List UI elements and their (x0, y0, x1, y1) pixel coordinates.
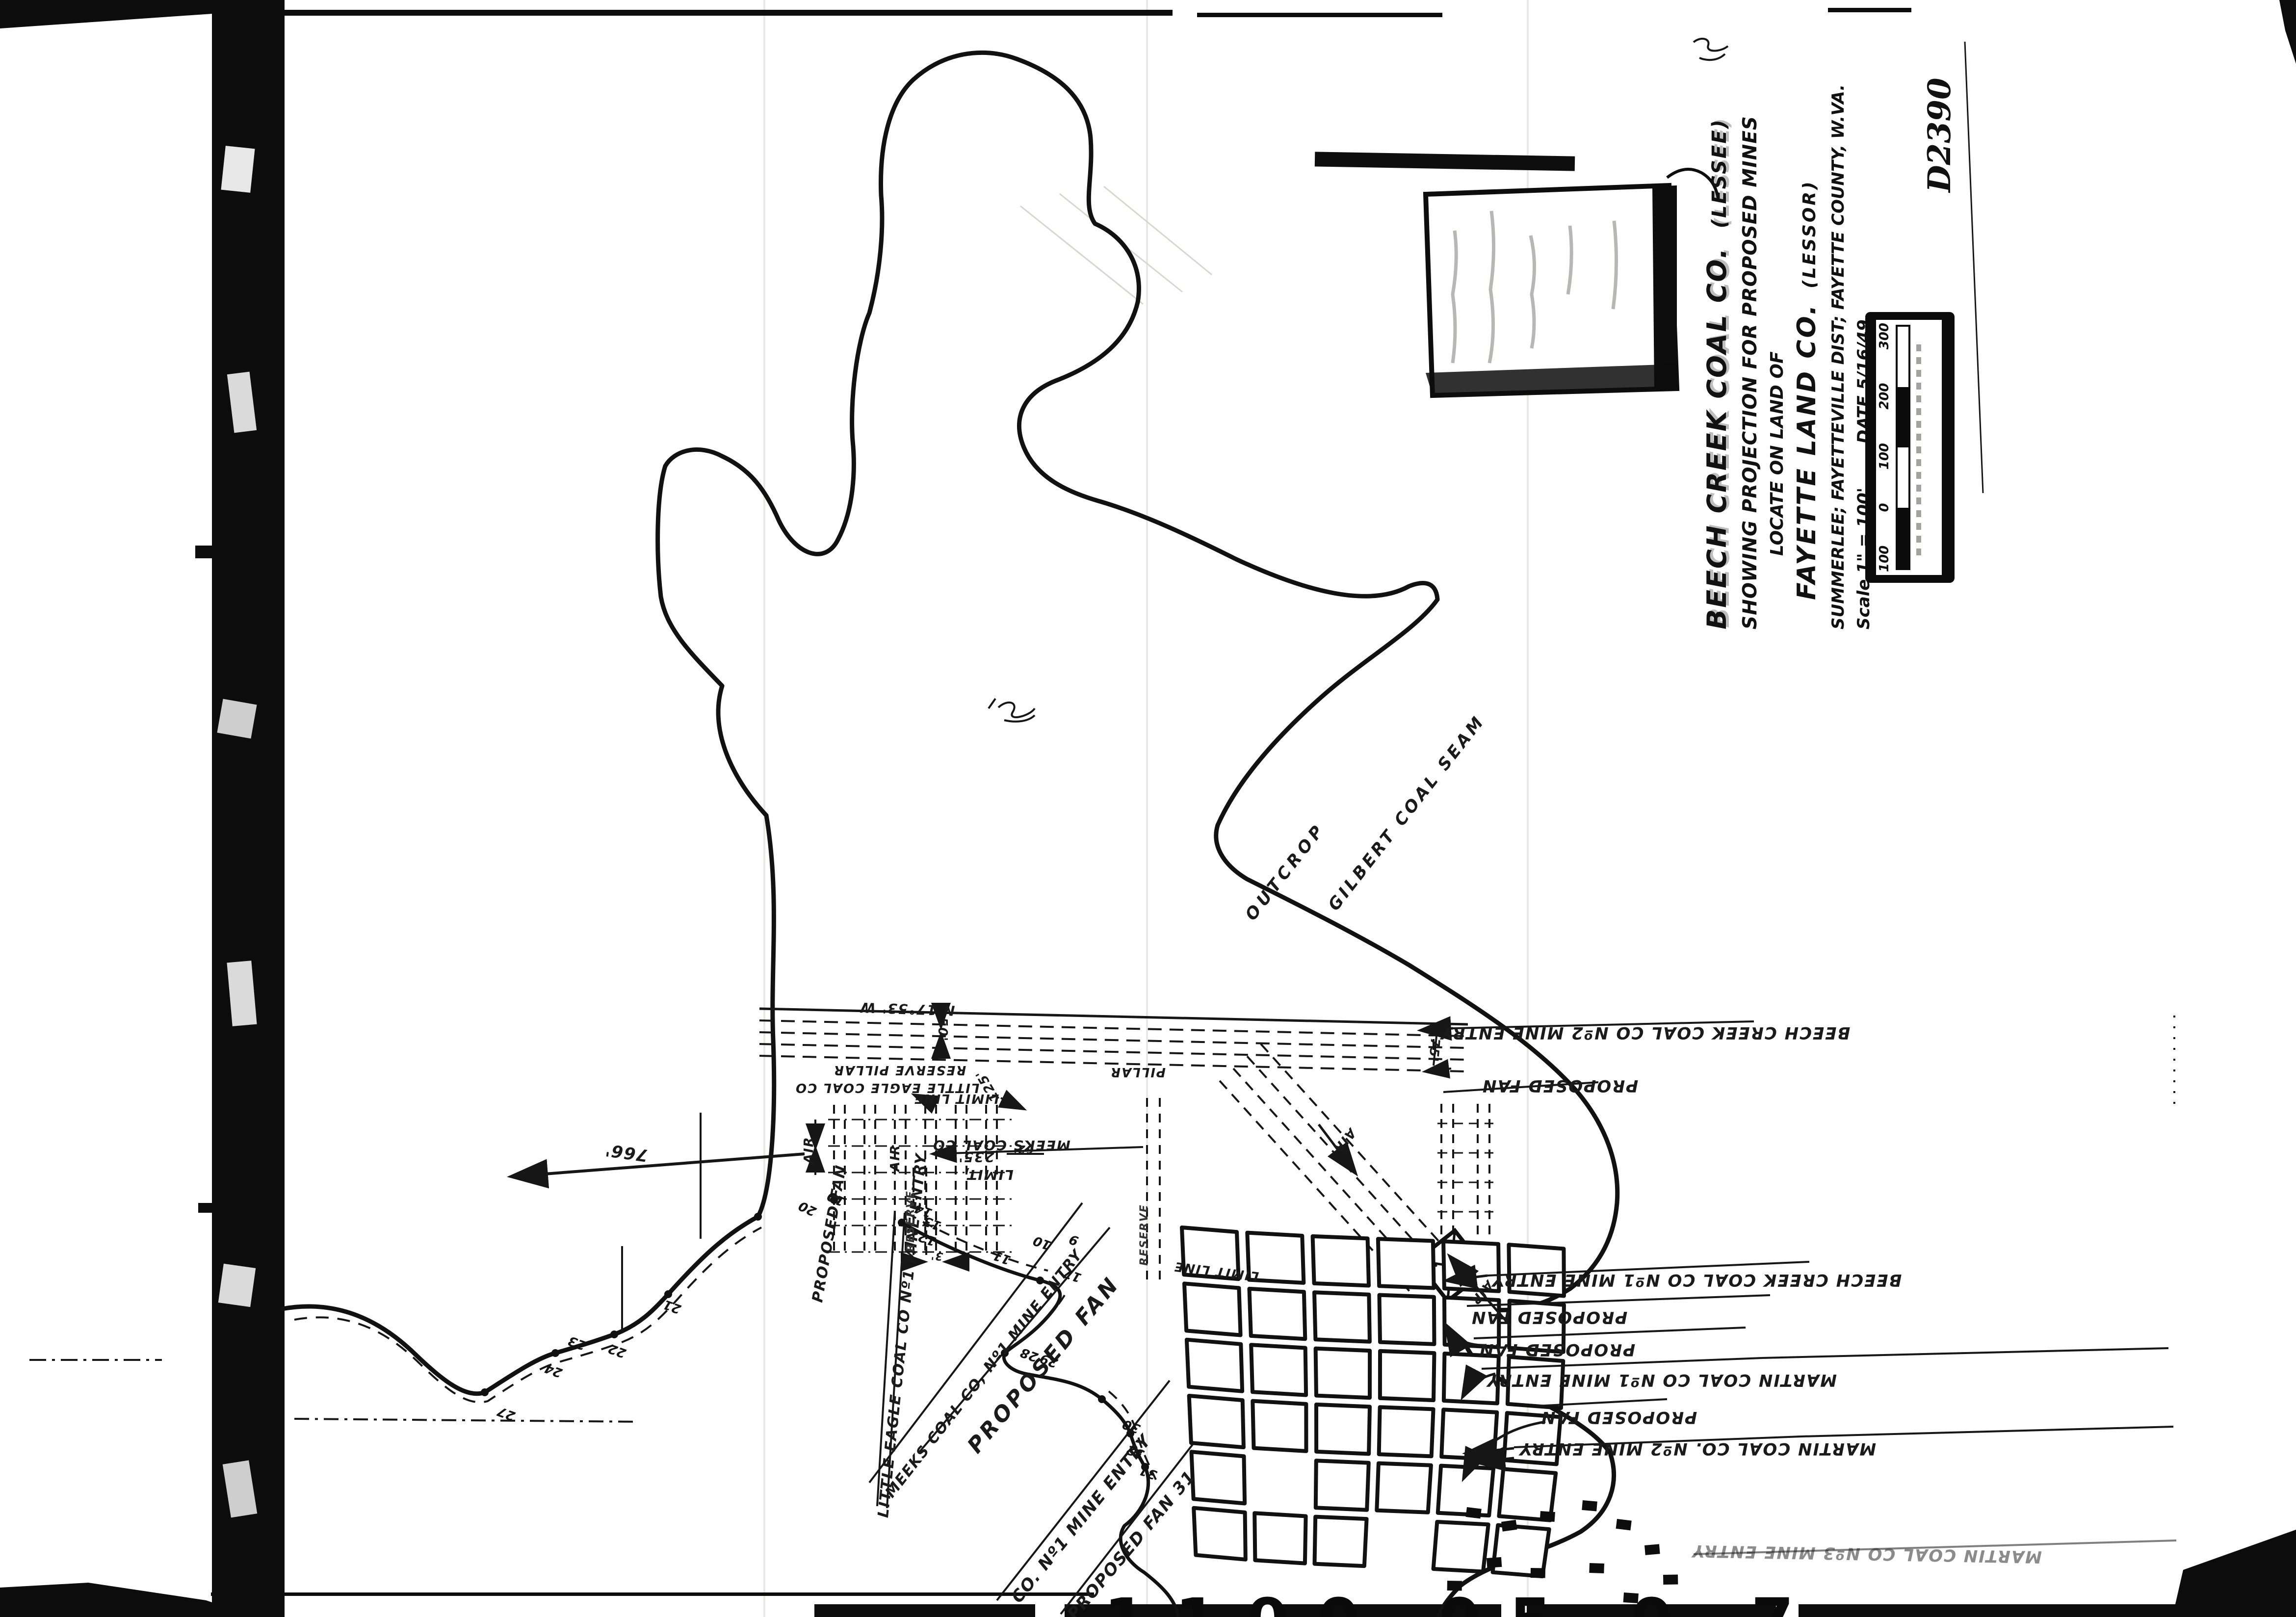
reserve-pillar-label: RESERVE PILLAR (833, 1064, 966, 1076)
martin1-entry-label: MARTIN COAL CO Nº1 MINE ENTRY (1487, 1372, 1837, 1388)
title-landowner: FAYETTE LAND CO.(LESSOR) (1792, 53, 1822, 600)
dim62-label: 62' (1013, 1143, 1034, 1154)
limit-word-label: LIMIT, (963, 1168, 1014, 1181)
pencil-streaks (1020, 186, 1212, 304)
scale-bar: 1000100200300 (1865, 312, 1939, 567)
title-company: BEECH CREEK COAL CO.(LESSEE) (1701, 53, 1732, 629)
scale-bar-ticks: 1000100200300 (1877, 323, 1892, 572)
reserve-vertical-label: RESERVE (1139, 1204, 1150, 1266)
boundary-dashed-companion (294, 1227, 761, 1402)
title-locate: LOCATE ON LAND OF (1767, 53, 1787, 556)
no2-entries-band (759, 1009, 1468, 1071)
drawing-number: D2390 (1921, 75, 1970, 192)
dim3-label: 3' (930, 1250, 943, 1261)
dim75-label: 75' (1427, 1038, 1441, 1063)
proposed-fan-label: PROPOSED FAN (1471, 1309, 1627, 1326)
scale-bar-caption-smudge (1916, 339, 1921, 555)
stamp-box (1315, 152, 1718, 395)
bearing-label: N 17°53' W (860, 1000, 955, 1017)
bench-mark-scribble (989, 699, 1035, 722)
pillar-label: PILLAR (1110, 1066, 1166, 1078)
beech2-entry-label: BEECH CREEK COAL CO Nº2 MINE ENTRY (1440, 1024, 1850, 1041)
title-company-role: (LESSEE) (1708, 118, 1731, 228)
title-location: SUMMERLEE; FAYETTEVILLE DIST; FAYETTE CO… (1828, 53, 1848, 629)
room-and-pillar-workings-right (1437, 1104, 1493, 1236)
title-subtitle: SHOWING PROJECTION FOR PROPOSED MINES (1739, 53, 1761, 629)
air-label: AIR (889, 1144, 902, 1172)
reserve-corridor (913, 1098, 1160, 1285)
spacing-label: 50' (936, 1017, 949, 1042)
bottom-edge-digit-fragments: 1100 05 0 7 (1104, 1586, 2085, 1617)
proposed-fan-label: PROPOSED FAN (1540, 1409, 1697, 1426)
scale-bar-segments (1896, 325, 1910, 570)
scan-border-top (0, 0, 2296, 64)
interior-traverse-dashed (907, 1213, 1156, 1480)
map-linework (0, 0, 2296, 1617)
scan-border-left (195, 0, 285, 1617)
martin2-entry-label: MARTIN COAL CO. Nº2 MINE ENTRY (1519, 1440, 1876, 1457)
proposed-fan-label: PROPOSED FAN (1479, 1341, 1635, 1358)
beech1-entry-label: BEECH CREEK COAL CO Nº1 MINE ENTRY (1491, 1272, 1902, 1288)
title-landowner-role: (LESSOR) (1800, 180, 1820, 288)
proposed-fan-label: PROPOSED FAN (1482, 1077, 1638, 1094)
air-label: AIR (803, 1136, 815, 1164)
scanned-mine-map: BEECH CREEK COAL CO.(LESSEE) SHOWING PRO… (0, 0, 2296, 1617)
meeks-label: MEEKS COAL CO (932, 1138, 1070, 1152)
dim235-label: 235' (958, 1150, 994, 1164)
reserve-vertical-label: RESERVE (906, 1190, 916, 1252)
